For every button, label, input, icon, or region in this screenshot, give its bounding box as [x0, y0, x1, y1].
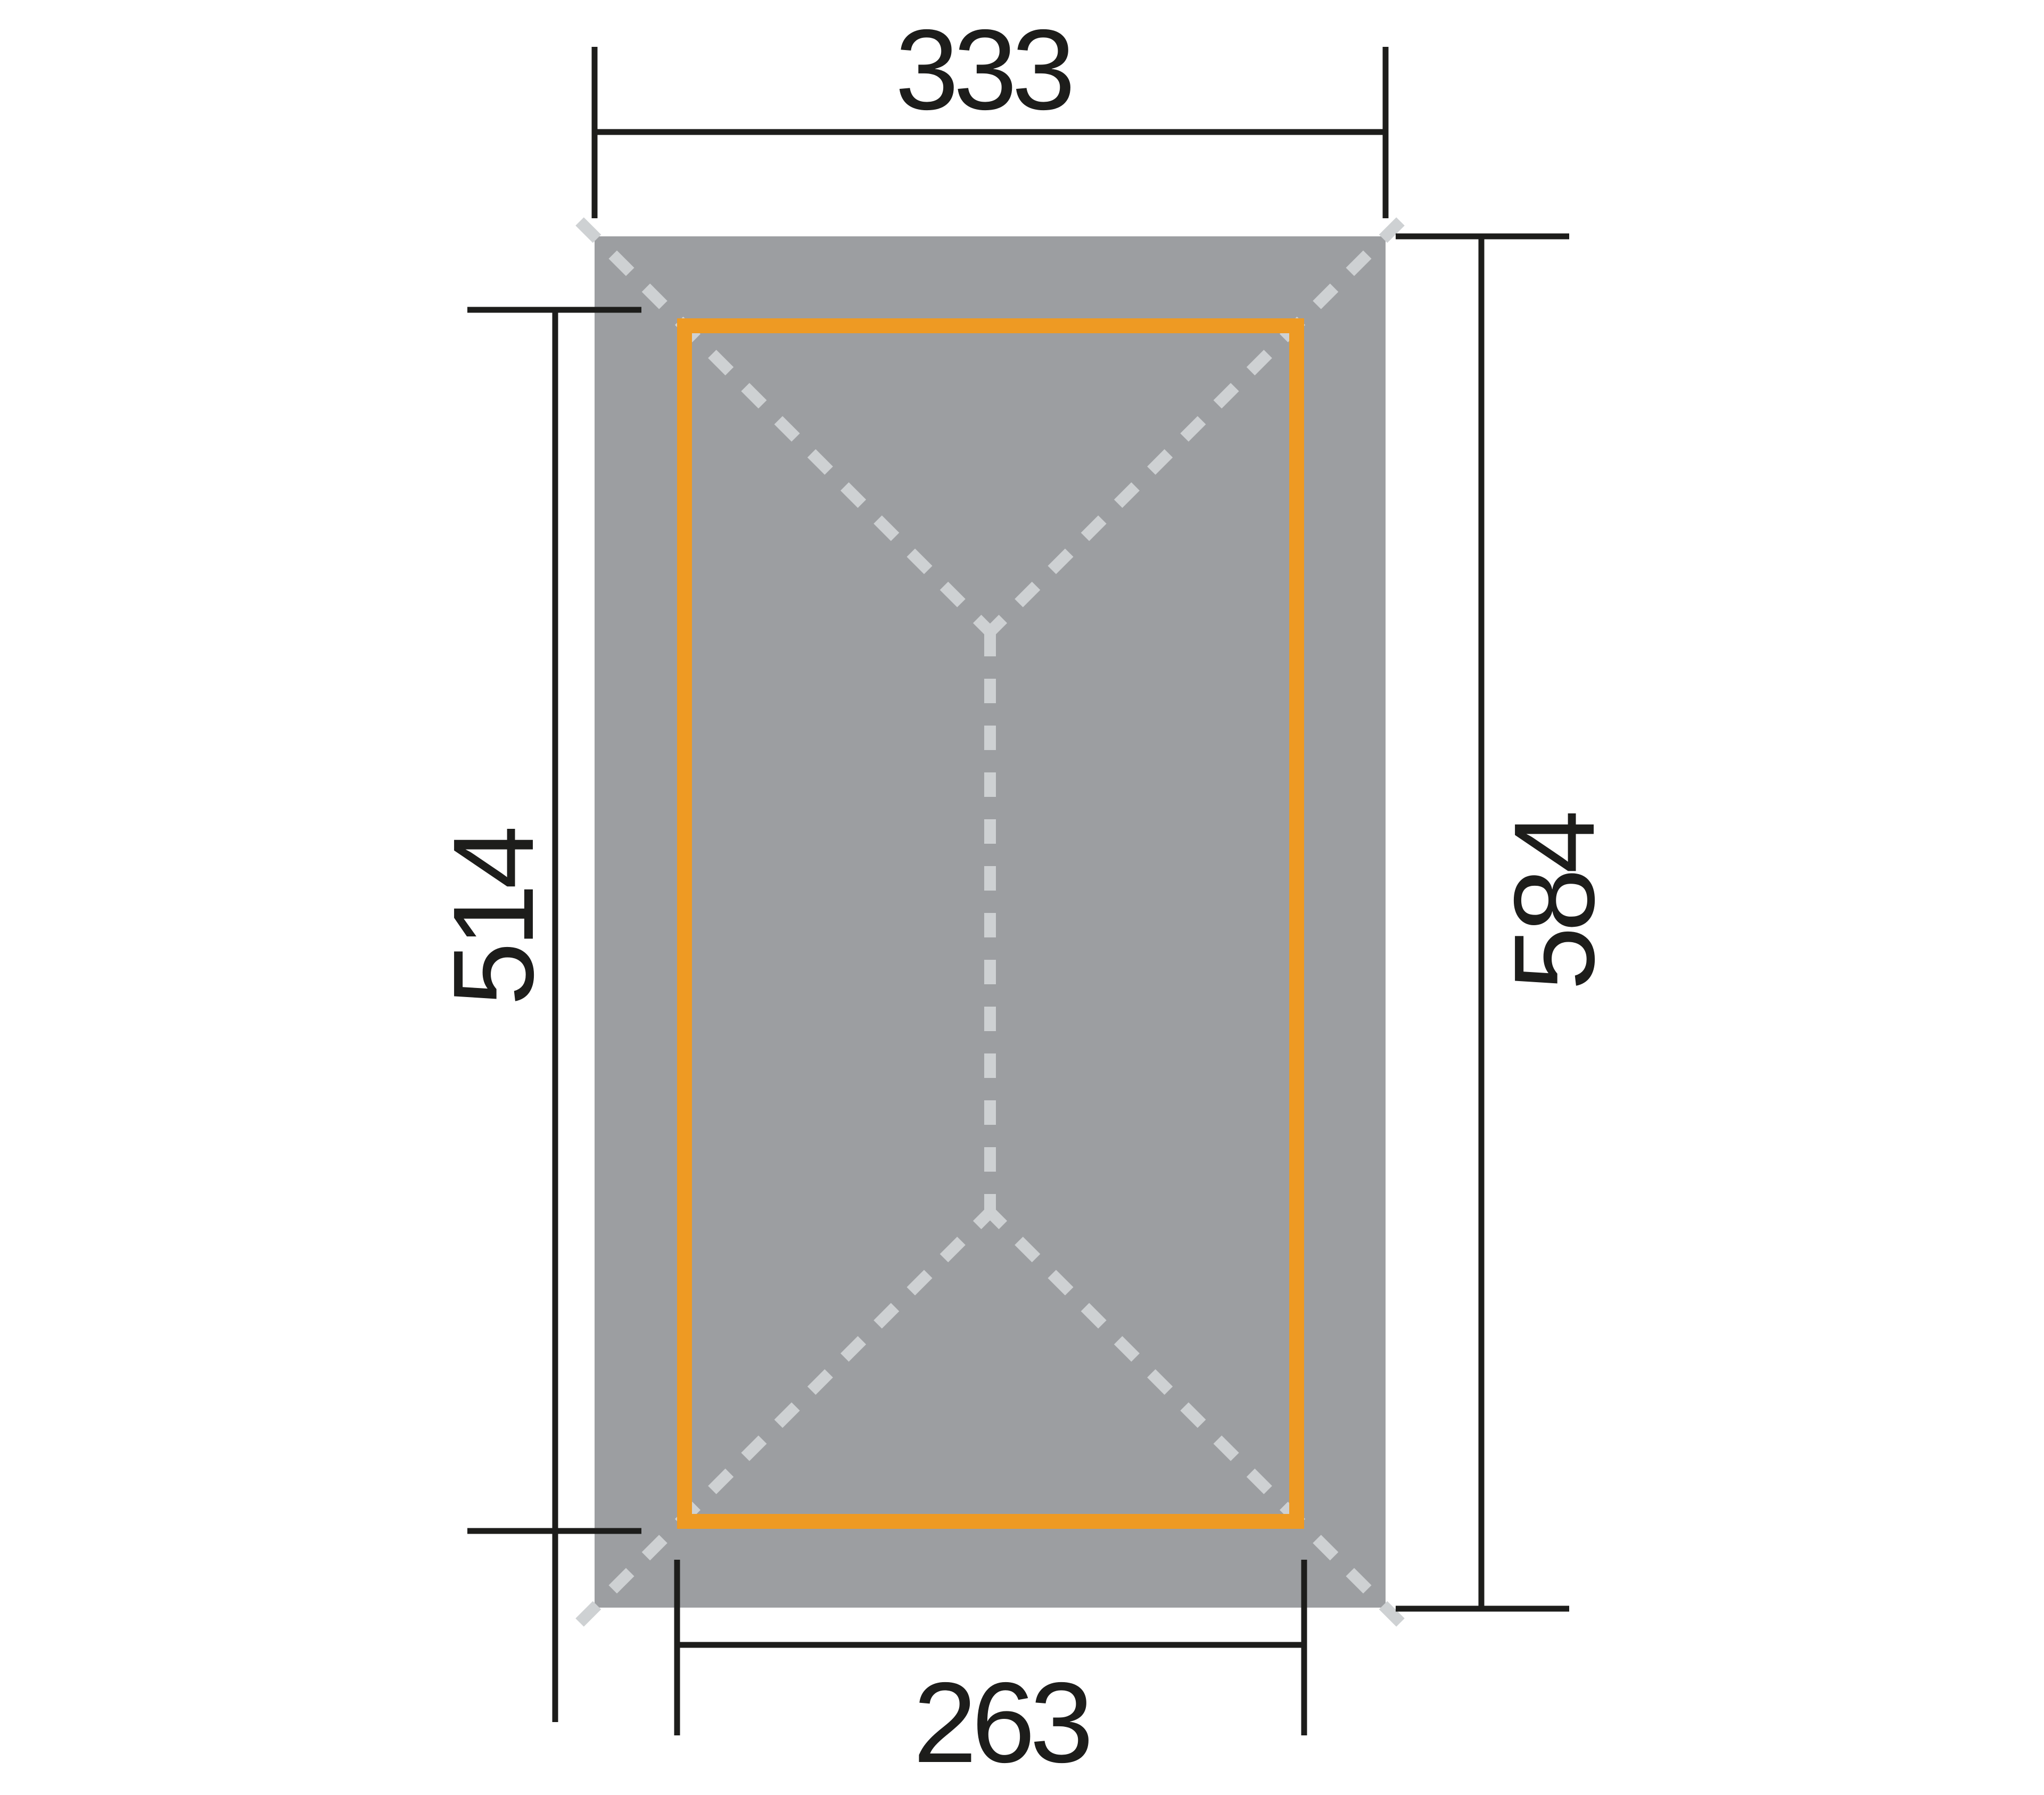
dim-left-label: 514 — [429, 828, 557, 1006]
roof-plan-drawing: 333 263 514 584 — [0, 0, 2044, 1795]
dim-right-label: 584 — [1490, 813, 1618, 990]
dim-top-label: 333 — [895, 5, 1071, 134]
dim-bottom-label: 263 — [913, 1658, 1089, 1786]
plan-diagram-canvas: 333 263 514 584 — [0, 0, 2044, 1795]
